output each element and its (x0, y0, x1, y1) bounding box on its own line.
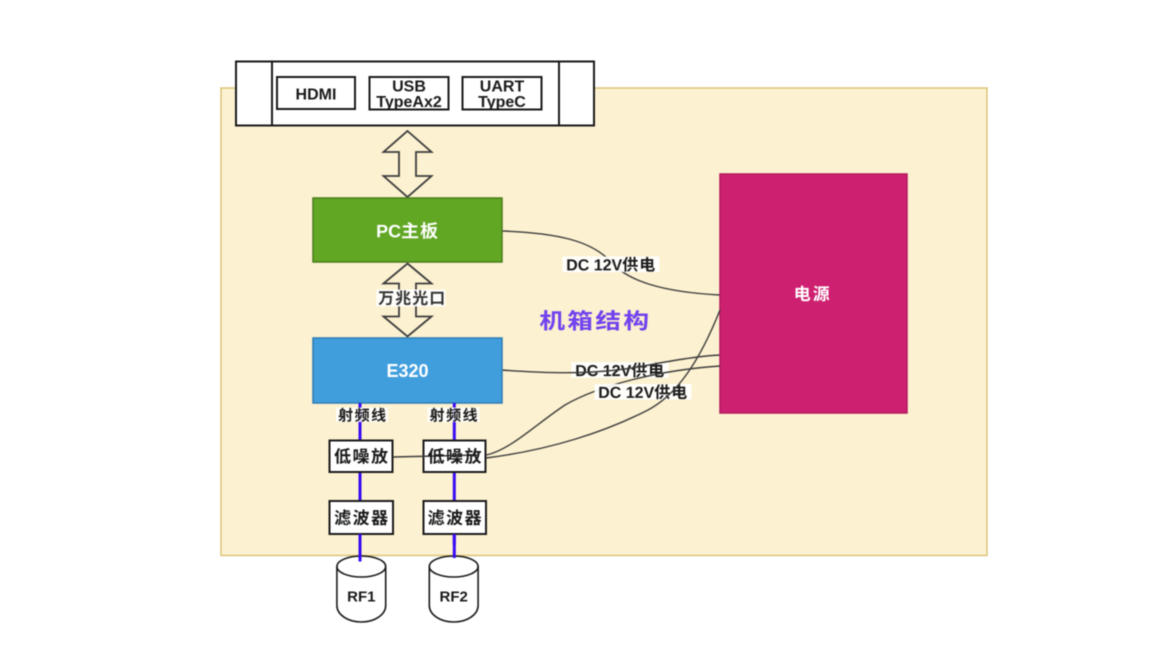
svg-text:RF2: RF2 (440, 588, 468, 605)
svg-text:RF1: RF1 (347, 588, 375, 605)
svg-text:E320: E320 (386, 361, 428, 381)
svg-text:TypeAx2: TypeAx2 (376, 94, 442, 111)
svg-text:HDMI: HDMI (296, 86, 337, 103)
svg-text:TypeC: TypeC (478, 94, 526, 111)
